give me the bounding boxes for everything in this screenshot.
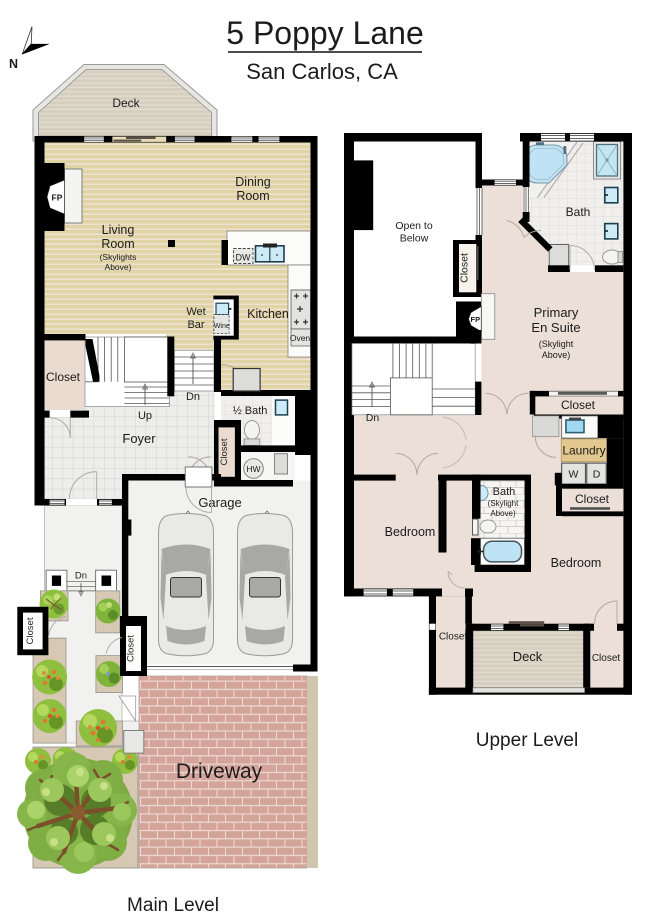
svg-text:Closet: Closet — [459, 253, 471, 283]
svg-text:Open to: Open to — [395, 220, 433, 232]
svg-text:Primary: Primary — [534, 305, 579, 320]
svg-text:Below: Below — [400, 233, 429, 245]
svg-text:Bedroom: Bedroom — [551, 556, 602, 570]
svg-text:Dn: Dn — [75, 571, 87, 582]
svg-text:Room: Room — [236, 189, 269, 203]
svg-text:FP: FP — [471, 315, 481, 324]
svg-text:Dining: Dining — [235, 175, 270, 189]
svg-text:Closet: Closet — [592, 653, 621, 664]
svg-text:N: N — [9, 57, 18, 71]
svg-text:Deck: Deck — [112, 96, 140, 110]
svg-text:W: W — [569, 469, 579, 481]
svg-text:Wine: Wine — [214, 323, 230, 330]
svg-text:Driveway: Driveway — [176, 760, 263, 783]
svg-text:Dn: Dn — [186, 391, 200, 403]
svg-text:½ Bath: ½ Bath — [233, 405, 268, 417]
svg-text:Bath: Bath — [566, 205, 591, 219]
svg-text:Closet: Closet — [46, 370, 81, 384]
svg-text:Above): Above) — [542, 350, 571, 360]
svg-text:DW: DW — [236, 253, 251, 263]
svg-text:En Suite: En Suite — [531, 320, 580, 335]
svg-text:Closet: Closet — [126, 635, 137, 662]
svg-text:Room: Room — [101, 237, 134, 251]
svg-text:Foyer: Foyer — [122, 431, 156, 446]
svg-text:San Carlos, CA: San Carlos, CA — [246, 59, 398, 84]
svg-text:Upper Level: Upper Level — [476, 730, 578, 751]
svg-text:Garage: Garage — [198, 495, 241, 510]
svg-text:Closet: Closet — [575, 492, 610, 506]
svg-text:(Skylight: (Skylight — [539, 339, 574, 349]
svg-text:HW: HW — [246, 464, 260, 474]
svg-text:Closet: Closet — [25, 617, 36, 644]
svg-text:D: D — [593, 469, 601, 481]
svg-text:Dn: Dn — [366, 412, 380, 424]
svg-text:Up: Up — [138, 410, 152, 422]
svg-text:Wet: Wet — [186, 306, 205, 318]
svg-text:Closet: Closet — [439, 632, 468, 643]
svg-text:Deck: Deck — [513, 649, 543, 664]
svg-text:Living: Living — [102, 223, 135, 237]
svg-text:FP: FP — [52, 193, 63, 203]
svg-text:Closet: Closet — [219, 438, 230, 465]
svg-text:Main Level: Main Level — [127, 895, 219, 916]
svg-text:Bedroom: Bedroom — [385, 525, 436, 539]
svg-text:5 Poppy Lane: 5 Poppy Lane — [226, 15, 424, 51]
svg-text:Laundry: Laundry — [562, 444, 605, 458]
svg-text:(Skylight: (Skylight — [488, 499, 519, 508]
svg-text:Oven: Oven — [290, 333, 311, 343]
svg-text:Above): Above) — [490, 509, 516, 518]
svg-text:Bath: Bath — [493, 486, 516, 498]
svg-text:Kitchen: Kitchen — [247, 307, 289, 321]
svg-text:Bar: Bar — [187, 319, 204, 331]
svg-text:Closet: Closet — [561, 398, 596, 412]
svg-text:(Skylights: (Skylights — [100, 252, 137, 262]
svg-text:Above): Above) — [105, 262, 132, 272]
